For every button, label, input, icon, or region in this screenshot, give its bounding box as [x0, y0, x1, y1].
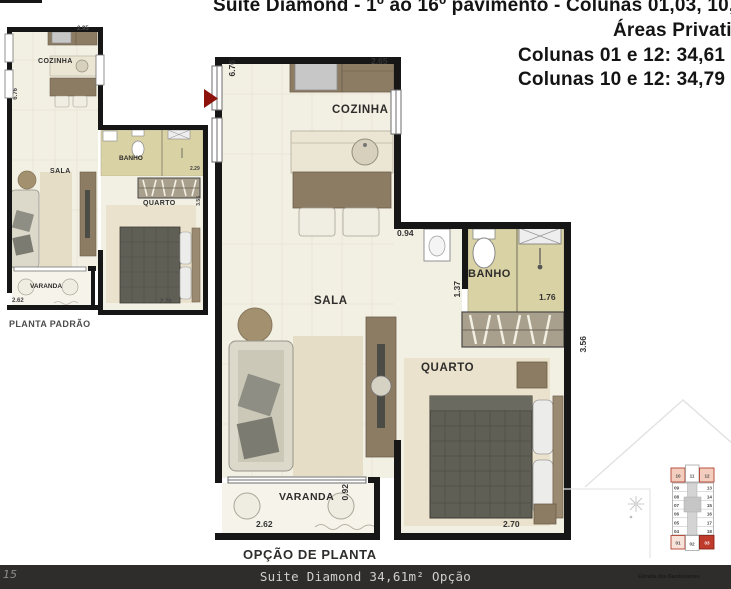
- padrao-room-label-cozinha: COZINHA: [38, 58, 73, 65]
- keyplan-unit-04: 04: [674, 529, 680, 534]
- padrao-room-label-sala: SALA: [50, 168, 71, 175]
- keyplan-unit-16: 16: [707, 512, 713, 517]
- keyplan-unit-13: 13: [707, 486, 713, 491]
- opcao-room-label-cozinha: COZINHA: [332, 104, 389, 116]
- keyplan-unit-09: 09: [674, 486, 680, 491]
- keyplan-unit-10: 10: [675, 474, 681, 479]
- floorplan-slide: 10 11 12 09 08 07 06 05 04 13 14 15 16 1…: [0, 0, 731, 589]
- opcao-room-label-banho: BANHO: [468, 268, 511, 280]
- opcao-dim-varanda-right: 0.92: [340, 484, 350, 501]
- opcao-dim-quarto-bottom: 2.70: [503, 519, 520, 529]
- page-title: Suíte Diamond - 1º ao 16º pavimento - Co…: [213, 0, 731, 17]
- opcao-dim-top: 2.65: [371, 56, 388, 66]
- keyplan-unit-14: 14: [707, 494, 713, 499]
- keyplan-unit-12: 12: [704, 474, 710, 479]
- top-edge-mark: [0, 0, 42, 3]
- padrao-dim-quarto: 3.56: [196, 196, 202, 206]
- opcao-caption: OPÇÃO DE PLANTA: [243, 547, 377, 562]
- keyplan-unit-17: 17: [707, 520, 713, 525]
- keyplan-unit-03: 03: [704, 541, 710, 546]
- padrao-dim-quarto-b: 2.70: [160, 299, 172, 305]
- plan-padrao-graphic: [5, 27, 208, 315]
- opcao-room-label-quarto: QUARTO: [421, 362, 474, 374]
- footer-watermark: Estrada dos Bandeirantes: [638, 574, 700, 580]
- subtitle-colunas-2: Colunas 10 e 12: 34,79: [518, 69, 725, 91]
- key-plan: 10 11 12 09 08 07 06 05 04 13 14 15 16 1…: [671, 465, 714, 551]
- footer-title: Suite Diamond 34,61m² Opção: [0, 569, 731, 584]
- opcao-room-label-sala: SALA: [314, 295, 348, 307]
- opcao-dim-banho-right: 1.76: [539, 292, 556, 302]
- opcao-dim-quarto-right: 3.56: [578, 336, 588, 353]
- padrao-room-label-varanda: VARANDA: [30, 283, 62, 290]
- padrao-caption: PLANTA PADRÃO: [9, 319, 91, 329]
- padrao-dim-varanda: 2.62: [12, 298, 24, 304]
- opcao-dim-lavabo: 0.94: [397, 228, 414, 238]
- opcao-dim-varanda-bottom: 2.62: [256, 519, 273, 529]
- opcao-wardrobe: [462, 312, 564, 347]
- subtitle-areas: Áreas Privativ: [613, 20, 731, 42]
- footer-bar: 15 Suite Diamond 34,61m² Opção Estrada d…: [0, 565, 731, 589]
- padrao-room-label-banho: BANHO: [119, 155, 143, 162]
- padrao-room-label-quarto: QUARTO: [143, 200, 176, 207]
- padrao-dim-banho: 2.29: [190, 166, 200, 172]
- compass-icon: [628, 496, 644, 518]
- keyplan-unit-02: 02: [689, 542, 695, 547]
- opcao-dim-left: 6.76: [227, 60, 237, 77]
- padrao-dim-top: 2.95: [77, 26, 89, 32]
- keyplan-unit-01: 01: [675, 541, 681, 546]
- keyplan-unit-18: 18: [707, 529, 713, 534]
- keyplan-unit-15: 15: [707, 503, 713, 508]
- keyplan-unit-07: 07: [674, 503, 680, 508]
- opcao-room-label-varanda: VARANDA: [279, 491, 334, 503]
- opcao-dim-banho-left: 1.37: [452, 281, 462, 298]
- site-plan: 10 11 12 09 08 07 06 05 04 13 14 15 16 1…: [563, 400, 731, 558]
- padrao-wardrobe: [138, 178, 200, 198]
- keyplan-unit-08: 08: [674, 494, 680, 499]
- keyplan-unit-06: 06: [674, 512, 680, 517]
- keyplan-unit-11: 11: [690, 474, 695, 479]
- padrao-dim-left: 6.76: [13, 88, 19, 100]
- subtitle-colunas-1: Colunas 01 e 12: 34,61: [518, 45, 725, 67]
- keyplan-unit-05: 05: [674, 520, 680, 525]
